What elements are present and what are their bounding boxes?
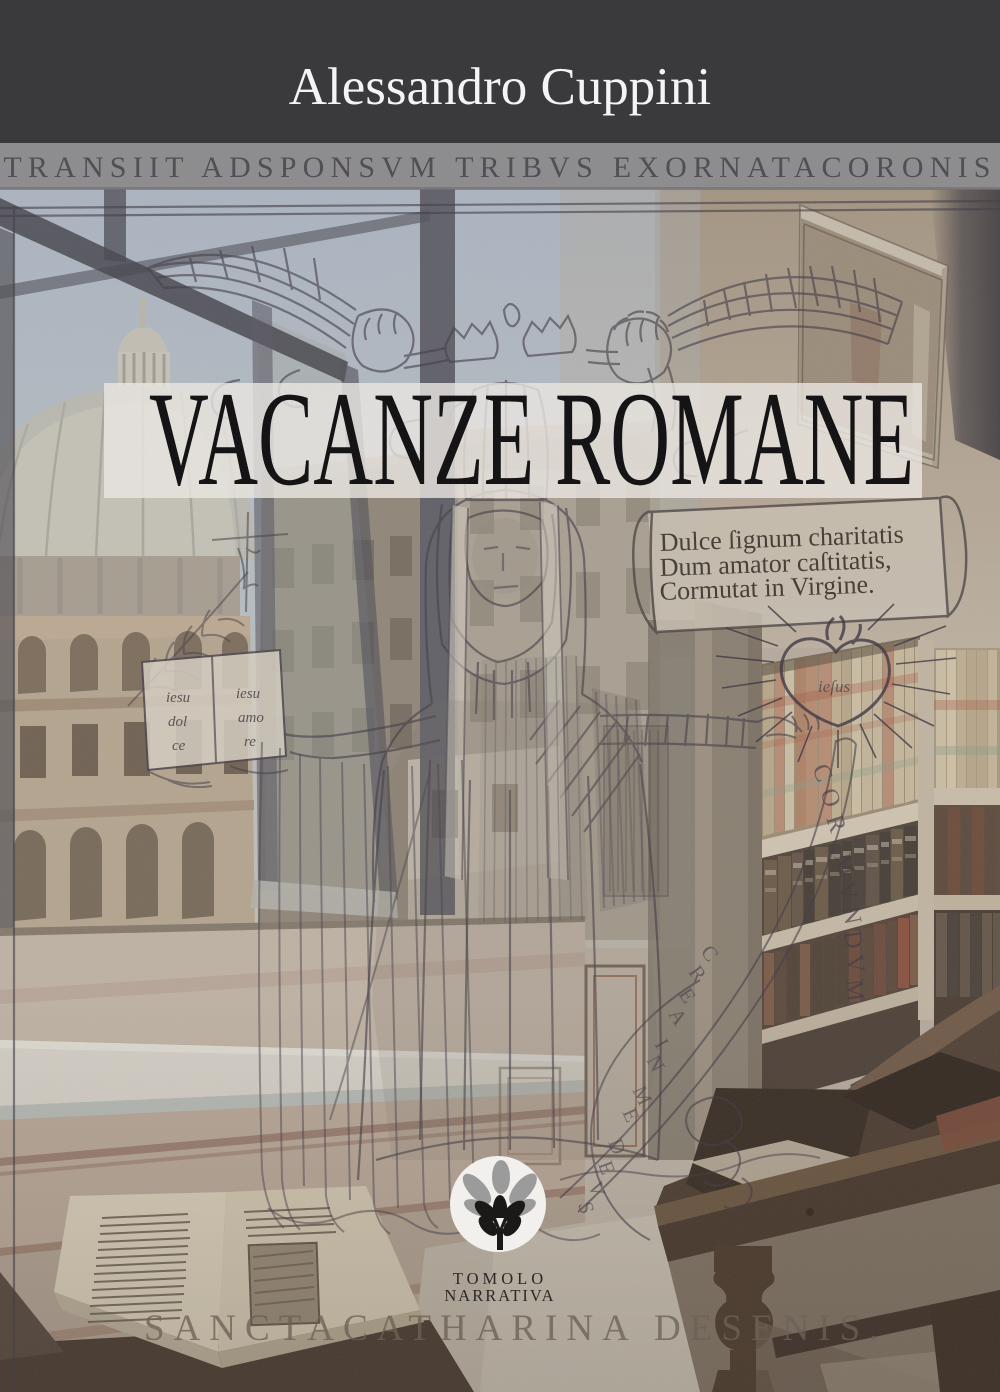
svg-text:Alessandro Cuppini: Alessandro Cuppini [289,58,712,116]
